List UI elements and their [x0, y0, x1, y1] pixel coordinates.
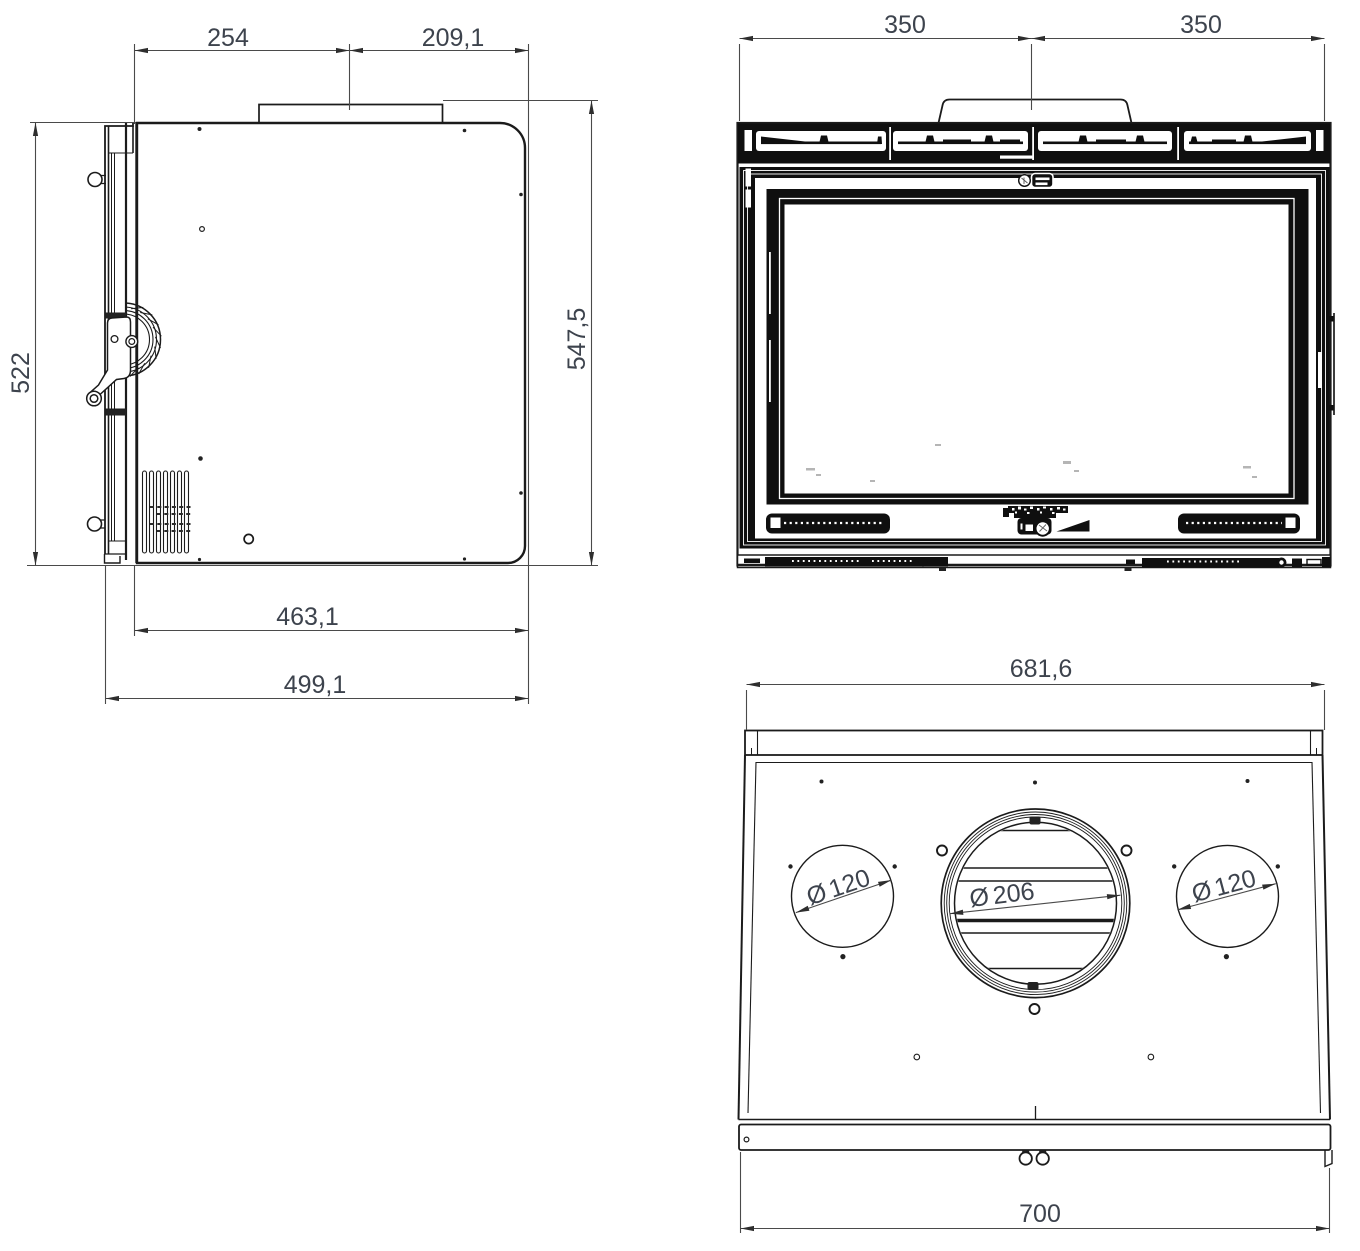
svg-text:463,1: 463,1 [276, 603, 339, 631]
svg-text:350: 350 [1180, 11, 1222, 39]
svg-text:522: 522 [7, 352, 35, 394]
svg-text:350: 350 [884, 11, 926, 39]
svg-text:681,6: 681,6 [1010, 655, 1073, 683]
svg-text:254: 254 [207, 24, 249, 52]
svg-text:209,1: 209,1 [422, 24, 485, 52]
svg-text:499,1: 499,1 [284, 671, 347, 699]
svg-text:700: 700 [1019, 1200, 1061, 1228]
svg-text:547,5: 547,5 [563, 308, 591, 371]
